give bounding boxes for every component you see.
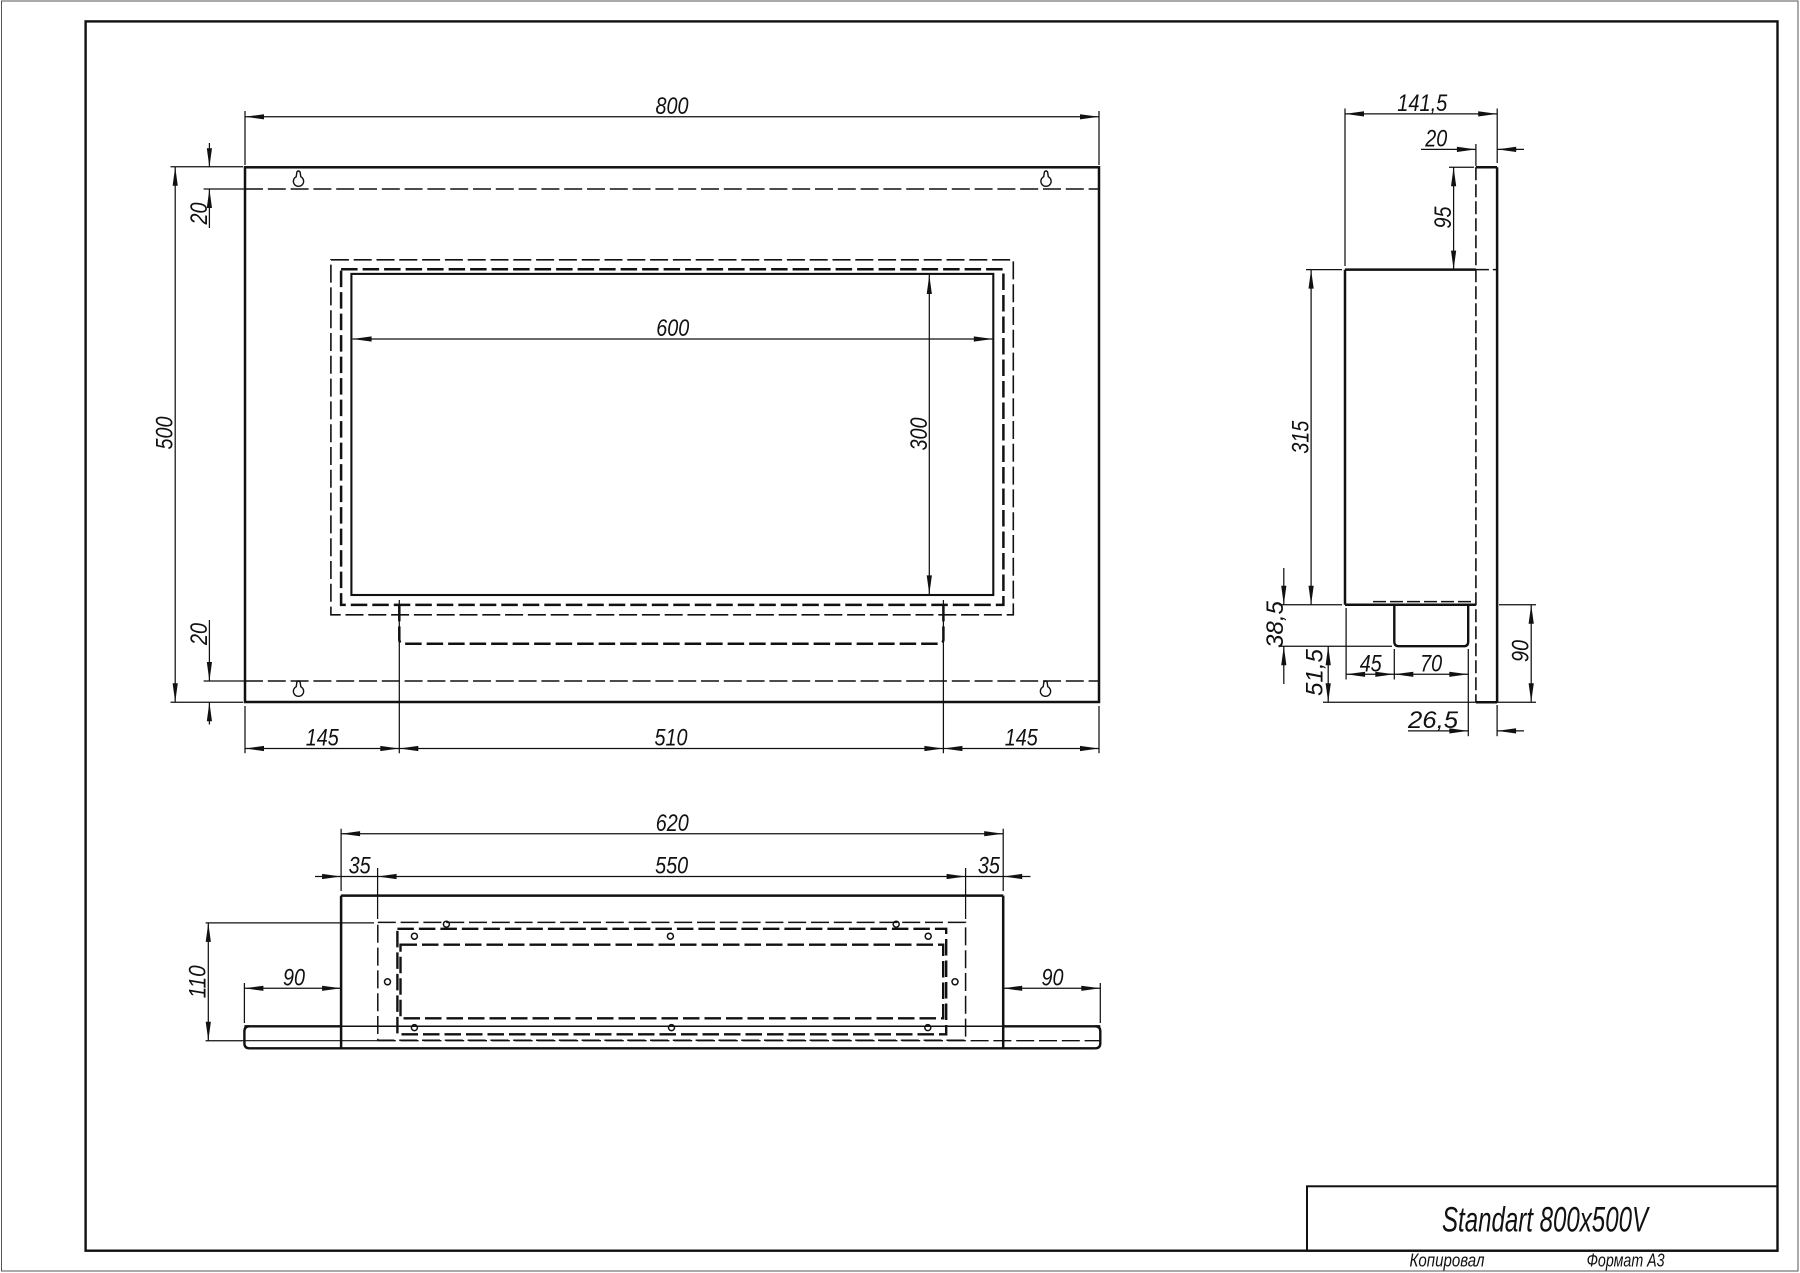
svg-text:70: 70	[1420, 651, 1443, 678]
svg-text:20: 20	[186, 622, 213, 645]
svg-text:20: 20	[186, 202, 213, 225]
svg-text:45: 45	[1360, 651, 1383, 678]
svg-text:141,5: 141,5	[1397, 90, 1448, 117]
svg-text:20: 20	[1424, 126, 1447, 153]
svg-text:600: 600	[656, 315, 690, 342]
svg-text:51,5: 51,5	[1301, 648, 1328, 696]
svg-text:550: 550	[655, 853, 689, 880]
svg-text:90: 90	[1508, 639, 1535, 662]
svg-text:800: 800	[656, 93, 690, 120]
svg-text:35: 35	[349, 853, 372, 880]
svg-text:Формат А3: Формат А3	[1587, 1251, 1665, 1271]
svg-text:145: 145	[306, 725, 340, 752]
svg-text:620: 620	[656, 810, 690, 837]
svg-text:145: 145	[1005, 725, 1039, 752]
svg-text:Копировал: Копировал	[1410, 1251, 1485, 1271]
svg-text:510: 510	[655, 725, 689, 752]
svg-text:90: 90	[1042, 965, 1065, 992]
svg-text:300: 300	[906, 417, 933, 451]
svg-text:500: 500	[152, 416, 179, 450]
svg-text:110: 110	[185, 965, 212, 999]
svg-text:26,5: 26,5	[1407, 707, 1459, 734]
svg-text:35: 35	[978, 853, 1001, 880]
svg-text:315: 315	[1287, 420, 1314, 454]
svg-text:Standart 800x500V: Standart 800x500V	[1442, 1201, 1651, 1240]
svg-text:38,5: 38,5	[1262, 600, 1289, 648]
svg-text:90: 90	[283, 965, 306, 992]
svg-text:95: 95	[1430, 206, 1457, 229]
